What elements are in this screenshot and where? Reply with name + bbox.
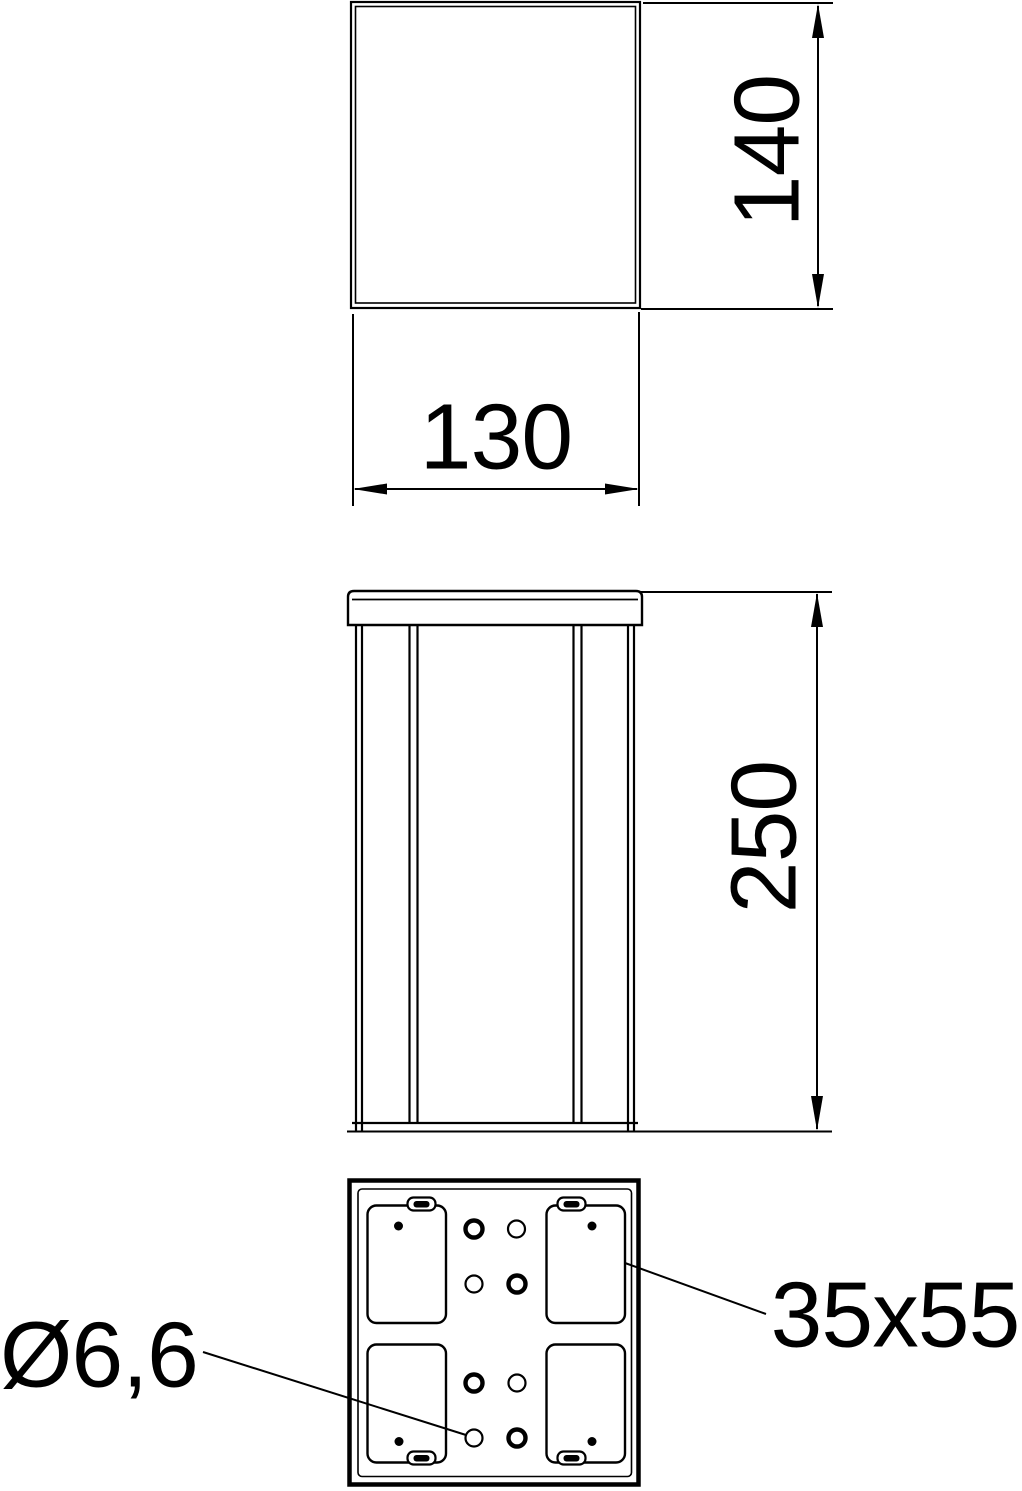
front-view-body-edges: [356, 625, 634, 1132]
cutout-bottom-left: [368, 1345, 447, 1463]
hole-diameter-callout-label: Ø6,6: [0, 1309, 198, 1402]
arrowhead-up: [811, 593, 823, 627]
arrowhead-left: [353, 484, 387, 495]
hole-row2-left: [466, 1276, 483, 1293]
top-view: [351, 2, 640, 308]
hole-row1-right: [508, 1221, 525, 1238]
bottom-view: [350, 1181, 639, 1485]
arrowhead-down: [811, 1096, 823, 1131]
dot-top-left: [394, 1222, 403, 1231]
hole-row1-left: [466, 1221, 483, 1238]
cutout-top-left: [368, 1206, 447, 1324]
hole-row3-right: [509, 1375, 526, 1392]
dot-top-right: [588, 1222, 597, 1231]
arrowhead-up: [812, 4, 824, 38]
cutout-size-callout-label: 35x55: [771, 1269, 1020, 1362]
clip-slot-bottom-right: [564, 1455, 580, 1462]
clip-slot-bottom-left: [414, 1455, 430, 1462]
leader-cutout-size: [625, 1263, 766, 1314]
cutout-bottom-right: [547, 1345, 626, 1463]
cutout-top-right: [547, 1206, 626, 1324]
arrowhead-right: [605, 484, 639, 495]
front-view-top-cap: [348, 591, 642, 625]
dot-bottom-left: [395, 1437, 404, 1446]
front-view-height-dimension-label: 250: [718, 761, 811, 913]
technical-drawing-sheet: 130 140 250 Ø6,6 35x55: [0, 0, 1022, 1491]
hole-row4-right: [509, 1430, 526, 1447]
top-view-depth-dimension-label: 140: [721, 75, 814, 227]
dot-bottom-right: [588, 1437, 597, 1446]
hole-row2-right: [509, 1276, 526, 1293]
hole-row4-left: [466, 1430, 483, 1447]
hole-row3-left: [466, 1375, 483, 1392]
arrowhead-down: [812, 274, 824, 308]
clip-slot-top-right: [564, 1201, 580, 1208]
top-view-outer-outline: [351, 2, 640, 308]
top-view-width-dimension-label: 130: [420, 391, 572, 484]
clip-slot-top-left: [414, 1201, 430, 1208]
